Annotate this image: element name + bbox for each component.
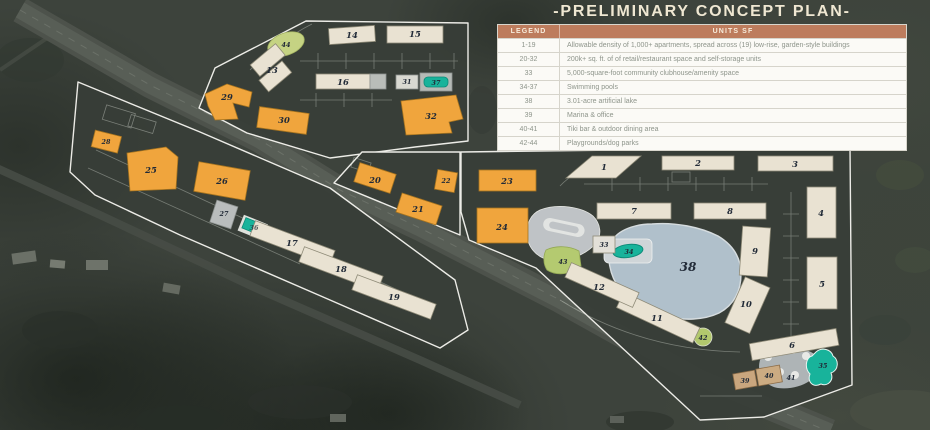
legend-row: 20-32 200k+ sq. ft. of of retail/restaur… <box>498 52 906 66</box>
legend-header-row: LEGEND UNITS SF <box>498 25 906 38</box>
plan-title: -PRELIMINARY CONCEPT PLAN- <box>497 3 907 21</box>
label-28: 28 <box>101 138 111 146</box>
label-10: 10 <box>740 299 752 309</box>
label-9: 9 <box>752 246 758 256</box>
legend-range: 33 <box>498 67 560 80</box>
legend-range: 39 <box>498 109 560 122</box>
label-27: 27 <box>219 210 229 218</box>
label-30: 30 <box>278 115 290 125</box>
label-7: 7 <box>631 206 637 216</box>
label-21: 21 <box>411 204 424 214</box>
label-33: 33 <box>600 241 609 249</box>
label-17: 17 <box>286 238 298 248</box>
legend-row: 34-37 Swimming pools <box>498 80 906 94</box>
legend-row: 40-41 Tiki bar & outdoor dining area <box>498 122 906 136</box>
label-3: 3 <box>792 159 798 169</box>
label-8: 8 <box>727 206 733 216</box>
label-40: 40 <box>765 372 774 380</box>
label-20: 20 <box>368 175 381 185</box>
label-18: 18 <box>335 264 347 274</box>
label-35: 35 <box>819 362 828 370</box>
label-32: 32 <box>425 111 437 121</box>
legend-row: 1-19 Allowable density of 1,000+ apartme… <box>498 38 906 52</box>
legend-desc: Tiki bar & outdoor dining area <box>560 123 906 136</box>
label-23: 23 <box>500 176 513 186</box>
label-43: 43 <box>559 258 568 266</box>
label-41: 41 <box>787 374 796 382</box>
label-19: 19 <box>388 292 400 302</box>
label-24: 24 <box>495 222 508 232</box>
label-1: 1 <box>601 162 607 172</box>
legend-range: 1-19 <box>498 39 560 52</box>
label-6: 6 <box>789 340 795 350</box>
legend-row: 38 3.01-acre artificial lake <box>498 94 906 108</box>
label-5: 5 <box>819 279 825 289</box>
legend-row: 33 5,000-square-foot community clubhouse… <box>498 66 906 80</box>
legend-range: 20-32 <box>498 53 560 66</box>
building-16-annex <box>370 74 386 89</box>
legend-range: 42-44 <box>498 137 560 150</box>
label-14: 14 <box>346 30 358 40</box>
label-12: 12 <box>593 282 605 292</box>
label-16: 16 <box>337 77 349 87</box>
legend-range: 38 <box>498 95 560 108</box>
label-22: 22 <box>441 177 451 185</box>
label-38: 38 <box>680 260 697 274</box>
label-13: 13 <box>266 65 278 75</box>
legend-desc: 200k+ sq. ft. of of retail/restaurant sp… <box>560 53 906 66</box>
label-44: 44 <box>282 41 291 49</box>
legend-desc: Marina & office <box>560 109 906 122</box>
legend-panel: -PRELIMINARY CONCEPT PLAN- LEGEND UNITS … <box>497 3 907 151</box>
label-34: 34 <box>625 248 634 256</box>
legend-header-col1: LEGEND <box>498 25 560 38</box>
label-36: 36 <box>250 224 259 232</box>
label-31: 31 <box>403 78 412 86</box>
label-4: 4 <box>818 208 824 218</box>
label-39: 39 <box>741 377 750 385</box>
label-2: 2 <box>694 158 701 168</box>
legend-desc: Playgrounds/dog parks <box>560 137 906 150</box>
label-25: 25 <box>144 165 157 175</box>
label-11: 11 <box>651 313 663 323</box>
legend-range: 34-37 <box>498 81 560 94</box>
legend-desc: 3.01-acre artificial lake <box>560 95 906 108</box>
label-15: 15 <box>409 29 421 39</box>
legend-row: 42-44 Playgrounds/dog parks <box>498 136 906 150</box>
label-26: 26 <box>215 176 228 186</box>
legend-desc: Allowable density of 1,000+ apartments, … <box>560 39 906 52</box>
legend-header-col2: UNITS SF <box>560 25 906 38</box>
legend-range: 40-41 <box>498 123 560 136</box>
legend-table: LEGEND UNITS SF 1-19 Allowable density o… <box>497 24 907 151</box>
legend-desc: 5,000-square-foot community clubhouse/am… <box>560 67 906 80</box>
label-42: 42 <box>699 334 708 342</box>
legend-row: 39 Marina & office <box>498 108 906 122</box>
legend-desc: Swimming pools <box>560 81 906 94</box>
label-37: 37 <box>432 79 441 87</box>
label-29: 29 <box>220 92 233 102</box>
aerial-site-plan: 1 2 3 4 5 6 7 8 9 10 11 12 13 14 15 16 1… <box>0 0 930 430</box>
